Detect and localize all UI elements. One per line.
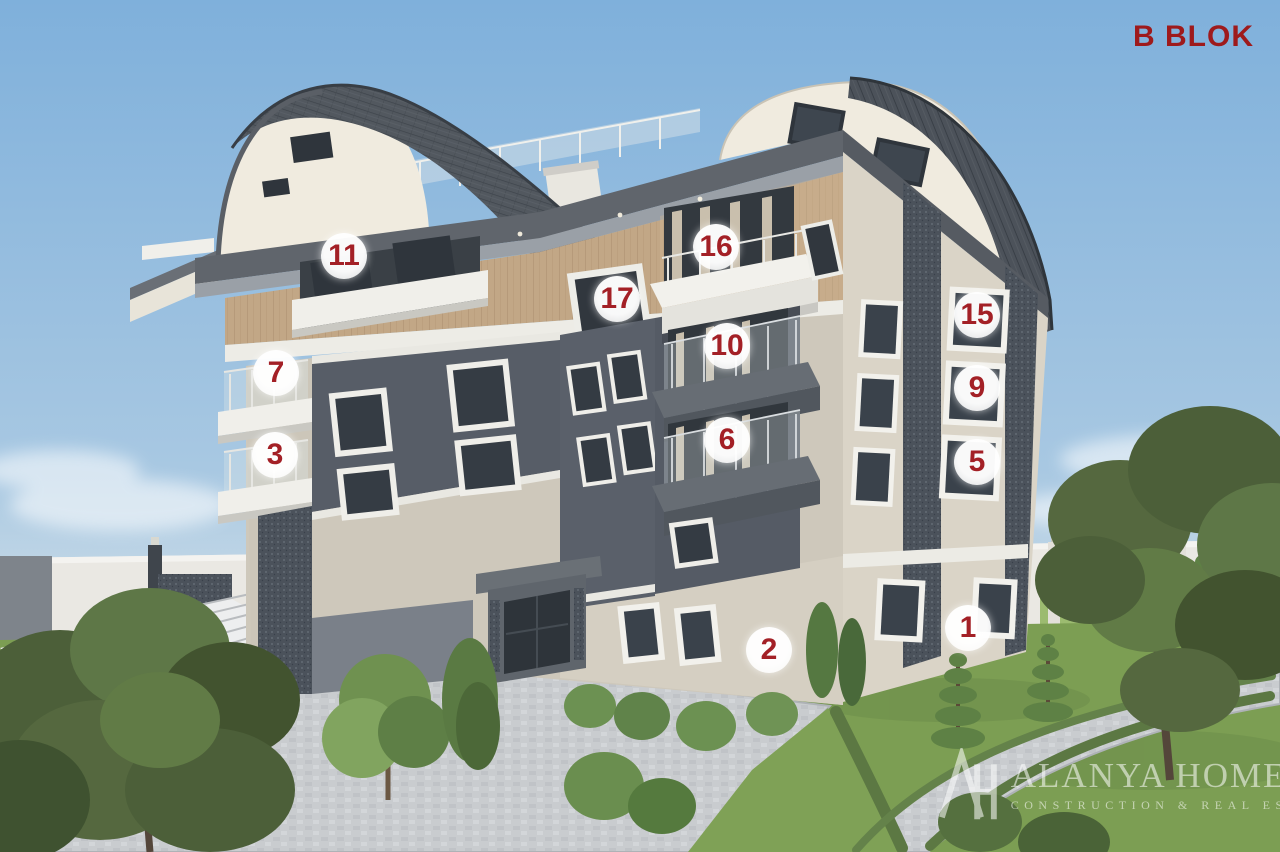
watermark-tagline: CONSTRUCTION & REAL ESTATE <box>1011 798 1280 813</box>
apartment-badge-10[interactable]: 10 <box>704 323 750 369</box>
block-title: B BLOK <box>1133 20 1254 54</box>
apartment-badge-15[interactable]: 15 <box>954 292 1000 338</box>
apartment-badge-7[interactable]: 7 <box>253 350 299 396</box>
apartment-badge-5[interactable]: 5 <box>954 439 1000 485</box>
apartment-badge-17[interactable]: 17 <box>594 276 640 322</box>
apartment-badge-3[interactable]: 3 <box>252 432 298 478</box>
apartment-badge-9[interactable]: 9 <box>954 365 1000 411</box>
building-rendering <box>0 0 1280 852</box>
apartment-badge-16[interactable]: 16 <box>693 224 739 270</box>
apartment-badge-6[interactable]: 6 <box>704 417 750 463</box>
apartment-badge-2[interactable]: 2 <box>746 627 792 673</box>
watermark-brand: ALANYA HOME <box>1011 758 1280 793</box>
apartment-badge-11[interactable]: 11 <box>321 233 367 279</box>
alanya-home-logo-icon <box>938 748 999 822</box>
watermark: ALANYA HOME CONSTRUCTION & REAL ESTATE <box>938 748 1280 822</box>
entrance <box>476 556 602 684</box>
apartment-badge-1[interactable]: 1 <box>945 605 991 651</box>
